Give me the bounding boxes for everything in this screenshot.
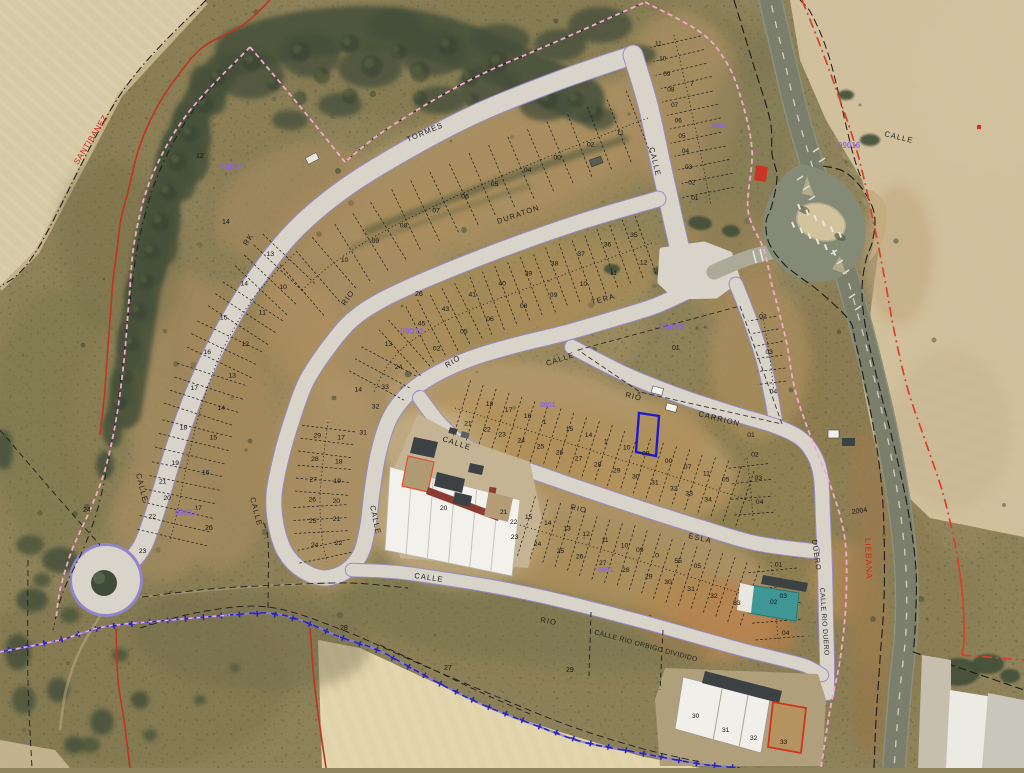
svg-text:12: 12 xyxy=(640,259,648,266)
svg-text:55: 55 xyxy=(674,558,682,565)
svg-text:31: 31 xyxy=(359,430,367,437)
svg-text:27: 27 xyxy=(575,456,583,463)
svg-text:1: 1 xyxy=(604,438,608,445)
svg-text:04: 04 xyxy=(756,499,764,506)
svg-text:14: 14 xyxy=(544,520,552,527)
svg-text:31: 31 xyxy=(722,727,730,734)
svg-text:0901: 0901 xyxy=(540,402,556,409)
svg-text:25: 25 xyxy=(537,444,545,451)
svg-text:33: 33 xyxy=(733,600,741,607)
svg-text:14: 14 xyxy=(222,219,230,226)
svg-text:25: 25 xyxy=(557,548,565,555)
svg-text:21: 21 xyxy=(159,479,167,486)
svg-text:16: 16 xyxy=(204,349,212,356)
svg-text:07: 07 xyxy=(684,464,692,471)
svg-text:15: 15 xyxy=(210,435,218,442)
svg-text:06: 06 xyxy=(486,316,494,323)
svg-text:21: 21 xyxy=(500,509,508,516)
svg-text:09016: 09016 xyxy=(838,141,861,150)
svg-text:24: 24 xyxy=(395,364,403,371)
svg-text:32: 32 xyxy=(670,486,678,493)
svg-text:07: 07 xyxy=(671,102,679,109)
svg-text:26: 26 xyxy=(576,553,584,560)
svg-text:11: 11 xyxy=(259,310,266,317)
svg-text:33: 33 xyxy=(685,491,693,498)
svg-text:7: 7 xyxy=(690,81,694,88)
svg-text:15: 15 xyxy=(566,426,574,433)
svg-text:05: 05 xyxy=(678,133,686,140)
svg-text:32: 32 xyxy=(372,404,380,411)
svg-text:09015: 09015 xyxy=(660,322,684,332)
svg-text:14: 14 xyxy=(241,280,249,287)
svg-text:29: 29 xyxy=(314,432,322,439)
svg-text:30: 30 xyxy=(692,713,700,720)
svg-text:05: 05 xyxy=(491,181,499,188)
svg-text:00: 00 xyxy=(553,154,561,161)
svg-text:09: 09 xyxy=(663,71,671,78)
svg-text:39: 39 xyxy=(525,270,533,277)
svg-text:20: 20 xyxy=(440,505,448,512)
svg-text:23: 23 xyxy=(139,548,147,555)
svg-text:13: 13 xyxy=(385,341,393,348)
svg-text:38: 38 xyxy=(551,261,559,268)
svg-text:02: 02 xyxy=(751,451,759,458)
svg-text:09012: 09012 xyxy=(400,326,424,336)
svg-text:17: 17 xyxy=(191,385,199,392)
svg-text:11: 11 xyxy=(602,537,609,544)
svg-text:28: 28 xyxy=(594,462,602,469)
svg-text:02: 02 xyxy=(770,599,778,606)
svg-text:22: 22 xyxy=(335,540,343,547)
svg-text:LIEBANA: LIEBANA xyxy=(863,538,874,580)
svg-text:28: 28 xyxy=(622,567,630,574)
svg-text:0901: 0901 xyxy=(712,123,728,130)
svg-text:08: 08 xyxy=(400,223,408,230)
svg-text:02: 02 xyxy=(759,313,767,320)
svg-text:04: 04 xyxy=(524,167,532,174)
svg-text:27: 27 xyxy=(310,477,318,484)
svg-text:24: 24 xyxy=(518,438,526,445)
svg-text:18: 18 xyxy=(180,425,188,432)
svg-text:22: 22 xyxy=(149,513,157,520)
svg-text:03: 03 xyxy=(765,349,773,356)
svg-text:06: 06 xyxy=(461,194,469,201)
svg-text:09: 09 xyxy=(636,547,644,554)
svg-text:17: 17 xyxy=(505,407,513,414)
svg-text:29: 29 xyxy=(613,468,621,475)
svg-text:04: 04 xyxy=(770,389,778,396)
svg-text:01: 01 xyxy=(691,195,699,202)
svg-text:10: 10 xyxy=(623,445,631,452)
svg-text:33: 33 xyxy=(381,384,389,391)
svg-text:0: 0 xyxy=(655,552,659,559)
svg-text:15: 15 xyxy=(525,514,533,521)
svg-text:10: 10 xyxy=(621,542,629,549)
svg-text:01: 01 xyxy=(775,561,783,568)
svg-text:26: 26 xyxy=(309,497,317,504)
svg-text:07: 07 xyxy=(432,207,440,214)
svg-text:30: 30 xyxy=(632,474,640,481)
svg-text:41: 41 xyxy=(469,292,477,299)
svg-text:28: 28 xyxy=(340,625,348,632)
svg-text:02: 02 xyxy=(433,345,441,352)
svg-text:10: 10 xyxy=(279,284,287,291)
svg-text:18: 18 xyxy=(335,459,343,466)
svg-text:26: 26 xyxy=(556,450,564,457)
svg-text:09: 09 xyxy=(550,292,558,299)
svg-text:32: 32 xyxy=(750,735,758,742)
svg-text:31: 31 xyxy=(651,480,659,487)
svg-text:23: 23 xyxy=(498,432,506,439)
svg-text:02: 02 xyxy=(688,180,696,187)
svg-text:20: 20 xyxy=(333,498,341,505)
svg-text:11: 11 xyxy=(610,270,617,277)
svg-text:35: 35 xyxy=(630,232,638,239)
svg-text:16: 16 xyxy=(524,413,532,420)
svg-text:1: 1 xyxy=(543,419,547,426)
svg-text:34: 34 xyxy=(704,497,712,504)
svg-text:13: 13 xyxy=(563,526,571,533)
svg-text:03: 03 xyxy=(755,475,763,482)
svg-text:11: 11 xyxy=(617,130,624,137)
svg-text:37: 37 xyxy=(577,251,585,258)
svg-text:12: 12 xyxy=(196,153,204,160)
svg-text:12: 12 xyxy=(582,531,590,538)
svg-text:18: 18 xyxy=(486,401,494,408)
svg-text:11: 11 xyxy=(655,40,662,47)
svg-text:14: 14 xyxy=(355,386,363,393)
svg-text:24: 24 xyxy=(534,541,542,548)
svg-text:29: 29 xyxy=(566,667,574,674)
svg-text:03: 03 xyxy=(685,164,693,171)
svg-text:13: 13 xyxy=(228,372,236,379)
svg-text:06: 06 xyxy=(675,117,683,124)
svg-text:09017: 09017 xyxy=(175,508,198,517)
svg-text:05: 05 xyxy=(722,476,730,483)
svg-text:10: 10 xyxy=(341,257,349,264)
svg-text:43: 43 xyxy=(442,306,450,313)
svg-text:09: 09 xyxy=(372,238,380,245)
svg-text:19: 19 xyxy=(172,460,180,467)
svg-text:22: 22 xyxy=(510,519,518,526)
svg-text:17: 17 xyxy=(337,435,345,442)
svg-text:32: 32 xyxy=(710,593,718,600)
svg-text:36: 36 xyxy=(604,242,612,249)
svg-text:12: 12 xyxy=(242,341,250,348)
svg-text:08: 08 xyxy=(667,87,675,94)
svg-text:04: 04 xyxy=(782,630,790,637)
svg-text:21: 21 xyxy=(333,516,341,523)
svg-text:25: 25 xyxy=(309,518,317,525)
svg-text:03: 03 xyxy=(780,593,788,600)
svg-text:08: 08 xyxy=(520,303,528,310)
svg-text:0901: 0901 xyxy=(598,567,614,574)
svg-text:31: 31 xyxy=(687,586,695,593)
svg-text:15: 15 xyxy=(220,315,228,322)
svg-text:01: 01 xyxy=(672,345,680,352)
svg-text:20: 20 xyxy=(163,495,171,502)
svg-text:13: 13 xyxy=(267,251,275,258)
svg-text:24: 24 xyxy=(311,542,319,549)
svg-text:29: 29 xyxy=(645,574,653,581)
svg-text:09: 09 xyxy=(642,451,650,458)
svg-text:21: 21 xyxy=(464,420,472,427)
svg-text:33: 33 xyxy=(780,739,788,746)
svg-text:10: 10 xyxy=(659,56,667,63)
svg-text:04: 04 xyxy=(682,148,690,155)
svg-text:24: 24 xyxy=(83,507,91,514)
svg-text:14: 14 xyxy=(585,432,593,439)
svg-text:27: 27 xyxy=(444,665,452,672)
svg-text:09011: 09011 xyxy=(220,162,243,172)
svg-text:05: 05 xyxy=(460,329,468,336)
svg-text:14: 14 xyxy=(218,405,226,412)
svg-text:30: 30 xyxy=(664,579,672,586)
svg-text:26: 26 xyxy=(415,291,423,298)
svg-text:22: 22 xyxy=(483,427,491,434)
svg-text:40: 40 xyxy=(498,280,506,287)
svg-text:10: 10 xyxy=(580,281,588,288)
svg-text:02: 02 xyxy=(587,141,595,148)
svg-text:26: 26 xyxy=(205,525,213,532)
svg-text:01: 01 xyxy=(747,432,755,439)
svg-text:23: 23 xyxy=(511,534,519,541)
svg-text:05: 05 xyxy=(694,563,702,570)
svg-text:00: 00 xyxy=(665,458,673,465)
svg-text:11: 11 xyxy=(703,470,710,477)
svg-text:28: 28 xyxy=(311,456,319,463)
svg-text:16: 16 xyxy=(202,470,210,477)
svg-text:19: 19 xyxy=(334,478,342,485)
